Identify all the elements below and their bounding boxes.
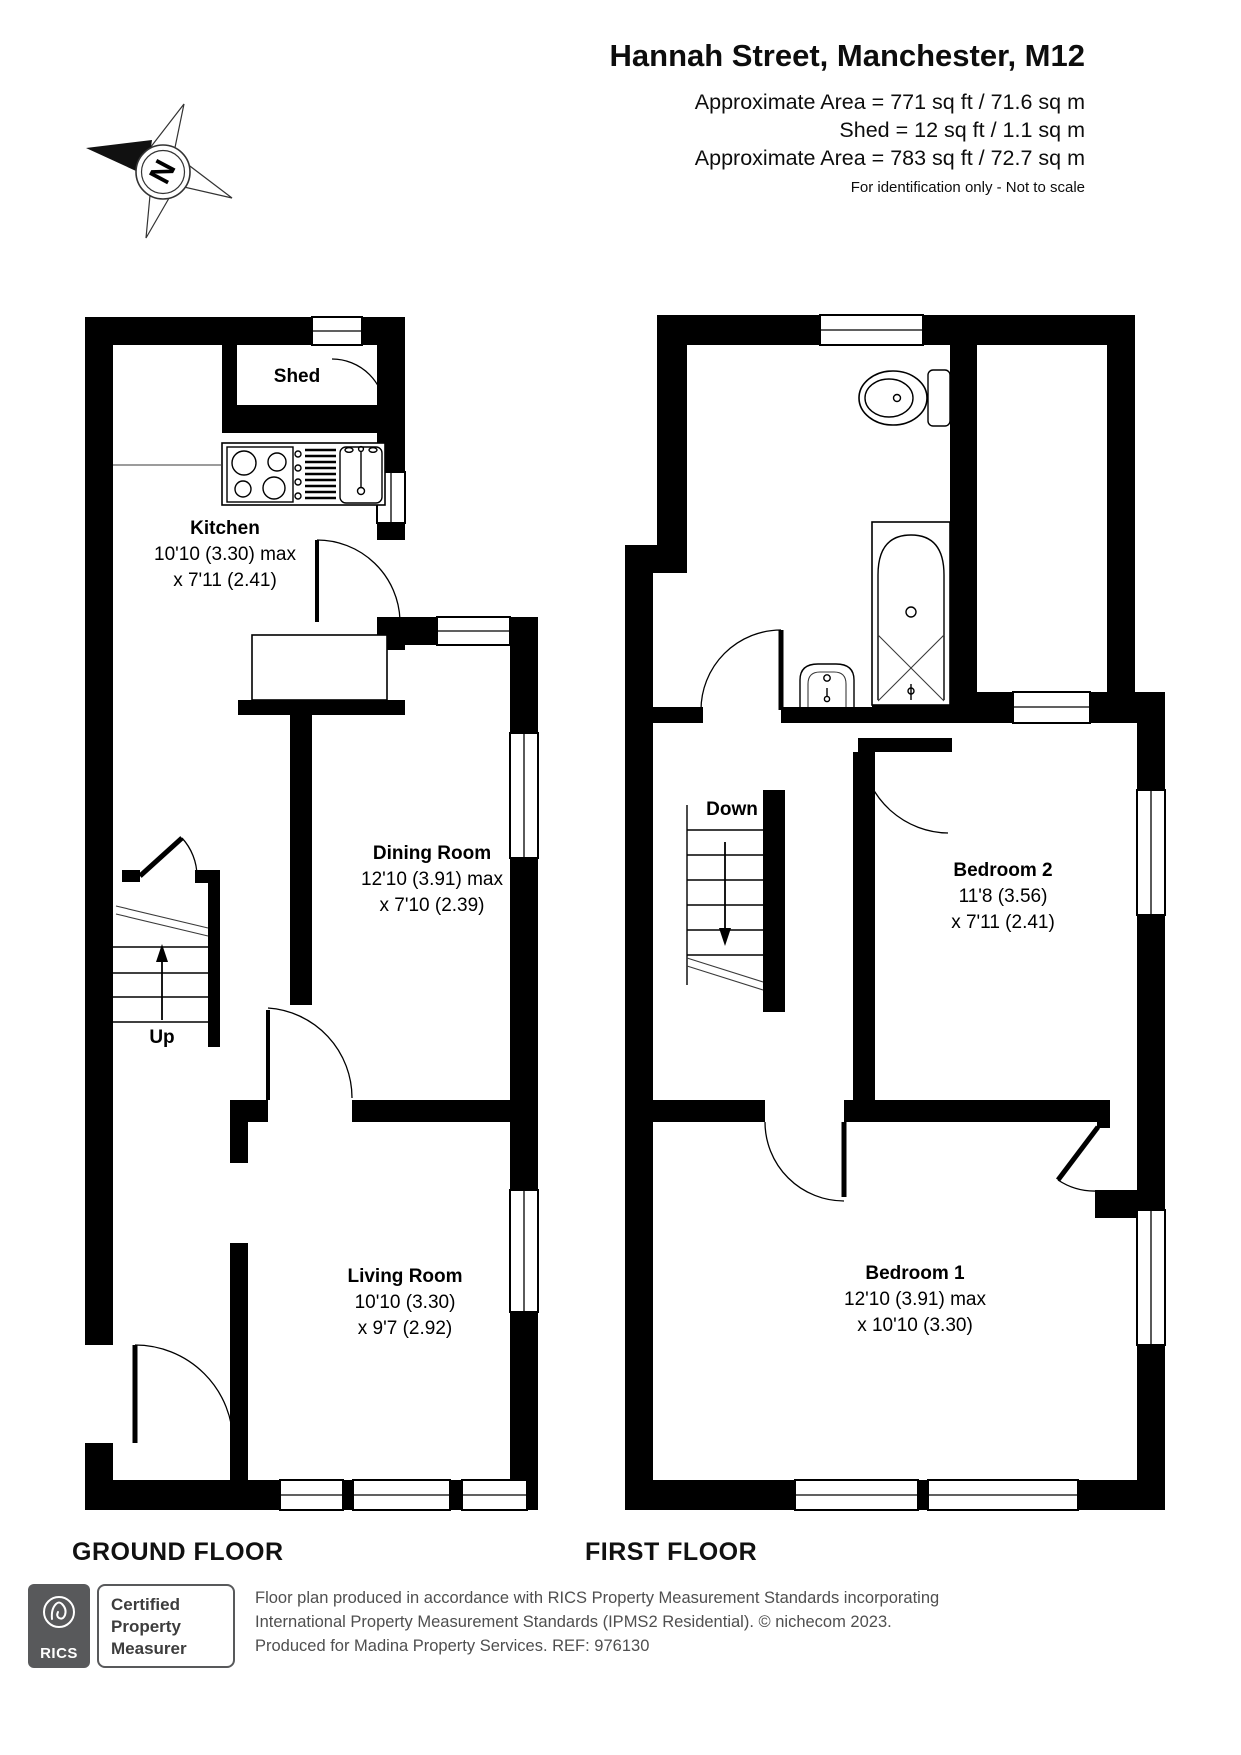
kitchen-unit xyxy=(252,635,387,700)
bedroom1-side-window xyxy=(1137,1210,1165,1345)
footer-note-line: Produced for Madina Property Services. R… xyxy=(255,1634,939,1658)
header: Hannah Street, Manchester, M12 Approxima… xyxy=(610,38,1086,196)
hall-stairs-door xyxy=(140,838,197,876)
bathtub-icon xyxy=(872,522,950,705)
shed-label: Shed xyxy=(274,364,320,390)
living-bottom-windows xyxy=(280,1480,527,1510)
page-title: Hannah Street, Manchester, M12 xyxy=(610,38,1086,74)
bedroom1-bottom-windows xyxy=(795,1480,1078,1510)
floorplan-page: .wall{fill:#000;} .win{fill:#fff;stroke:… xyxy=(0,0,1241,1755)
living-room-door xyxy=(268,1008,352,1100)
approx-area-line-1: Approximate Area = 771 sq ft / 71.6 sq m xyxy=(610,88,1086,116)
bathroom-fixtures xyxy=(800,370,950,707)
living-room-label: Living Room 10'10 (3.30) x 9'7 (2.92) xyxy=(347,1264,462,1342)
down-label: Down xyxy=(706,799,758,821)
scale-disclaimer: For identification only - Not to scale xyxy=(610,179,1086,196)
dining-side-window xyxy=(510,733,538,858)
bedroom1-cupboard-door xyxy=(1058,1127,1098,1191)
footer-note-line: International Property Measurement Stand… xyxy=(255,1610,939,1634)
rics-lion-icon xyxy=(39,1591,79,1633)
basin-icon xyxy=(800,664,854,707)
shed-area-line: Shed = 12 sq ft / 1.1 sq m xyxy=(610,116,1086,144)
bedroom2-top-window xyxy=(1013,692,1090,723)
bedroom2-side-window xyxy=(1137,790,1165,915)
stairs-down xyxy=(687,805,763,990)
toilet-icon xyxy=(859,370,950,426)
dining-room-label: Dining Room 12'10 (3.91) max x 7'10 (2.3… xyxy=(361,841,503,919)
footer-notes: Floor plan produced in accordance with R… xyxy=(255,1584,939,1658)
shed-window xyxy=(312,317,362,345)
floorplan-drawing: .wall{fill:#000;} .win{fill:#fff;stroke:… xyxy=(0,0,1241,1755)
dining-top-window xyxy=(437,617,510,645)
ground-floor-title: GROUND FLOOR xyxy=(72,1538,284,1567)
bedroom1-door xyxy=(765,1122,844,1201)
bathroom-door xyxy=(701,630,781,710)
up-arrow-icon xyxy=(156,944,168,1020)
approx-area-line-2: Approximate Area = 783 sq ft / 72.7 sq m xyxy=(610,144,1086,172)
front-door xyxy=(135,1345,233,1443)
up-label: Up xyxy=(149,1027,174,1049)
certified-measurer-badge: Certified Property Measurer xyxy=(97,1584,235,1668)
footer-note-line: Floor plan produced in accordance with R… xyxy=(255,1586,939,1610)
stairs-up xyxy=(113,906,208,1022)
bathroom-top-window xyxy=(820,315,923,345)
down-arrow-icon xyxy=(719,842,731,946)
living-side-window xyxy=(510,1190,538,1312)
kitchen-dining-door xyxy=(317,540,400,622)
bedroom2-label: Bedroom 2 11'8 (3.56) x 7'11 (2.41) xyxy=(951,858,1055,936)
compass-rose-icon: N xyxy=(86,104,232,238)
first-floor-title: FIRST FLOOR xyxy=(585,1538,757,1567)
rics-logo: RICS xyxy=(28,1584,90,1668)
kitchen-label: Kitchen 10'10 (3.30) max x 7'11 (2.41) xyxy=(154,516,296,594)
bedroom1-label: Bedroom 1 12'10 (3.91) max x 10'10 (3.30… xyxy=(844,1261,986,1339)
footer: RICS Certified Property Measurer Floor p… xyxy=(28,1584,939,1668)
drainer-icon xyxy=(305,450,336,498)
